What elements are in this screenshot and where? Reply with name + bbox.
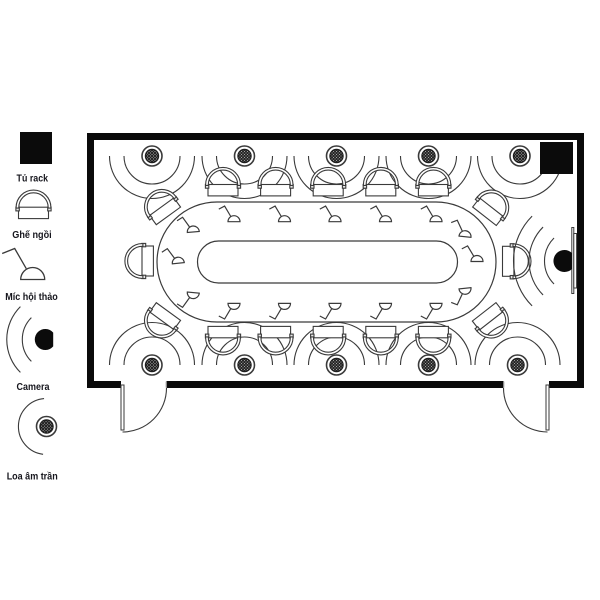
svg-text:Ghế ngồi: Ghế ngồi	[12, 229, 51, 241]
svg-text:Míc hội thảo: Míc hội thảo	[5, 291, 58, 303]
svg-text:Camera: Camera	[17, 381, 50, 393]
svg-text:Loa âm trần: Loa âm trần	[7, 471, 58, 483]
svg-text:Tủ rack: Tủ rack	[17, 172, 49, 184]
